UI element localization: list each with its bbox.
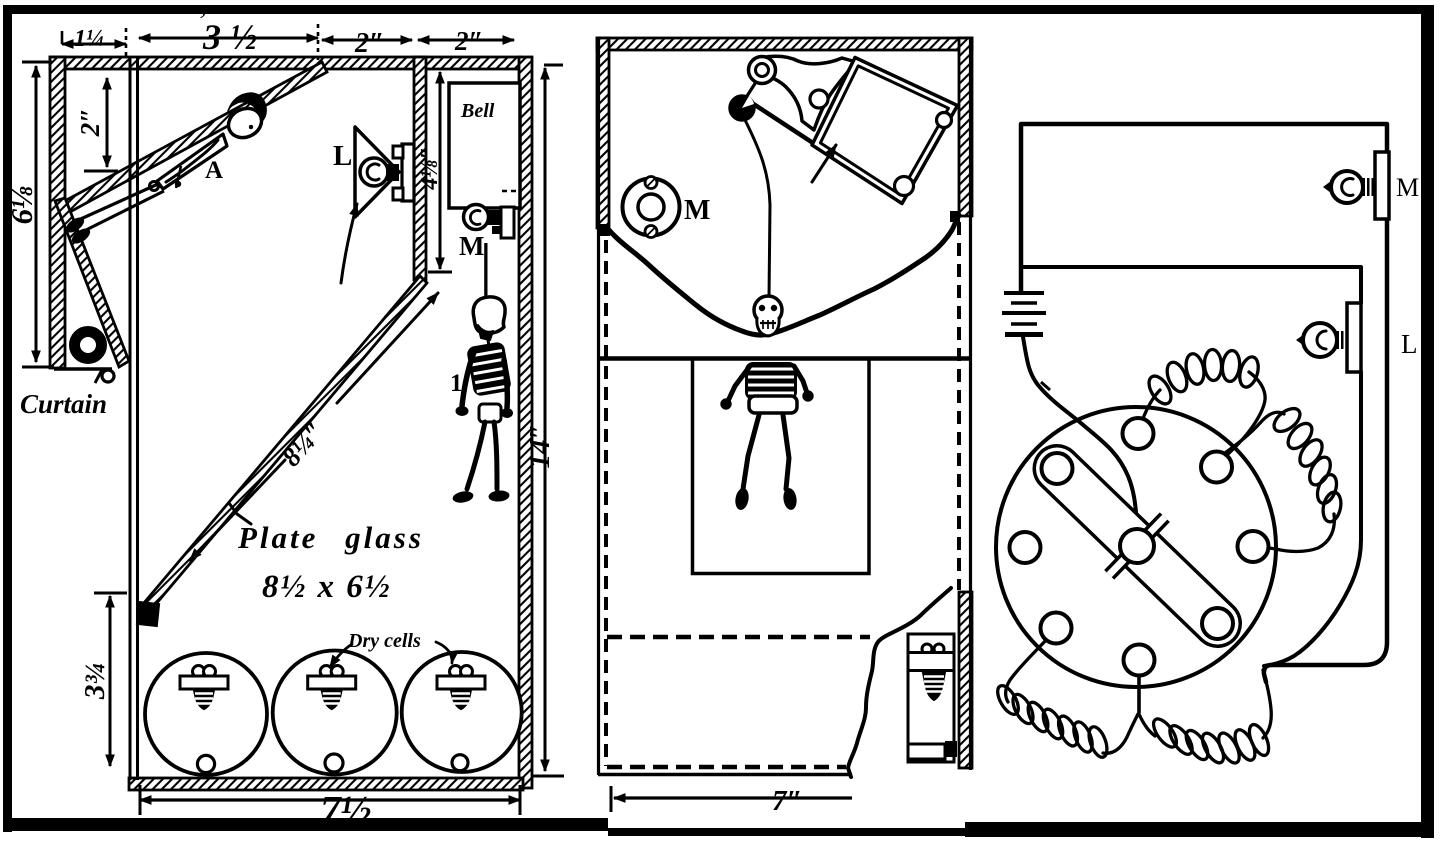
svg-text:Plate glass: Plate glass (237, 520, 424, 555)
svg-text:L: L (333, 140, 352, 172)
svg-text:7″: 7″ (772, 785, 803, 817)
svg-text:1¼: 1¼ (74, 26, 104, 52)
svg-text:3 ½: 3 ½ (202, 17, 257, 57)
svg-text:Bell: Bell (460, 100, 495, 122)
svg-text:Dry cells: Dry cells (347, 630, 421, 652)
svg-text:2″: 2″ (454, 26, 483, 56)
svg-text:7½: 7½ (320, 787, 371, 833)
svg-text:6⅛: 6⅛ (4, 186, 39, 225)
svg-text:M: M (459, 231, 484, 261)
svg-text:’: ’ (196, 4, 206, 37)
svg-text:M: M (684, 195, 710, 226)
svg-text:8½ x 6½: 8½ x 6½ (262, 569, 392, 605)
svg-text:3¾: 3¾ (79, 663, 111, 700)
svg-text:2″: 2″ (75, 108, 105, 137)
svg-text:2″: 2″ (354, 28, 384, 59)
svg-text:4⅛″: 4⅛″ (417, 146, 443, 190)
svg-text:14″: 14″ (524, 423, 556, 468)
svg-text:Curtain: Curtain (20, 389, 107, 419)
svg-text:M: M (1396, 173, 1419, 202)
svg-text:L: L (1401, 329, 1418, 359)
svg-text:1: 1 (450, 370, 463, 397)
svg-text:A: A (205, 157, 223, 184)
